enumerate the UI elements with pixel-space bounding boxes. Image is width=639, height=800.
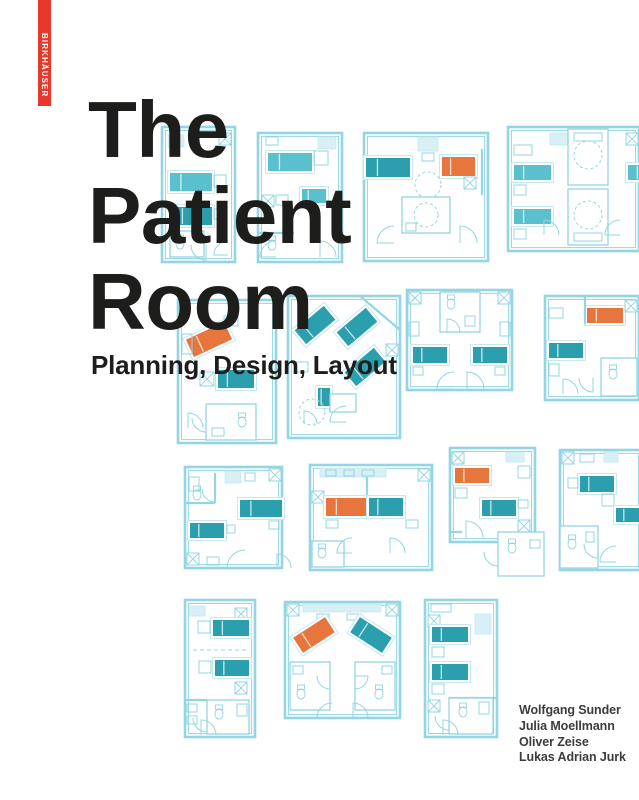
publisher-logo-bar: BIRKHÄUSER bbox=[38, 0, 51, 106]
title-line-3: Room bbox=[88, 259, 351, 345]
title-line-2: Patient bbox=[88, 173, 351, 259]
author-3: Oliver Zeise bbox=[519, 735, 626, 751]
book-cover: BIRKHÄUSER The Patient Room Planning, De… bbox=[0, 0, 639, 800]
title-line-1: The bbox=[88, 87, 351, 173]
author-4: Lukas Adrian Jurk bbox=[519, 750, 626, 766]
publisher-name: BIRKHÄUSER bbox=[40, 33, 49, 97]
author-1: Wolfgang Sunder bbox=[519, 703, 626, 719]
author-2: Julia Moellmann bbox=[519, 719, 626, 735]
book-subtitle: Planning, Design, Layout bbox=[91, 350, 397, 381]
book-title: The Patient Room bbox=[88, 87, 351, 345]
author-list: Wolfgang Sunder Julia Moellmann Oliver Z… bbox=[519, 703, 626, 766]
